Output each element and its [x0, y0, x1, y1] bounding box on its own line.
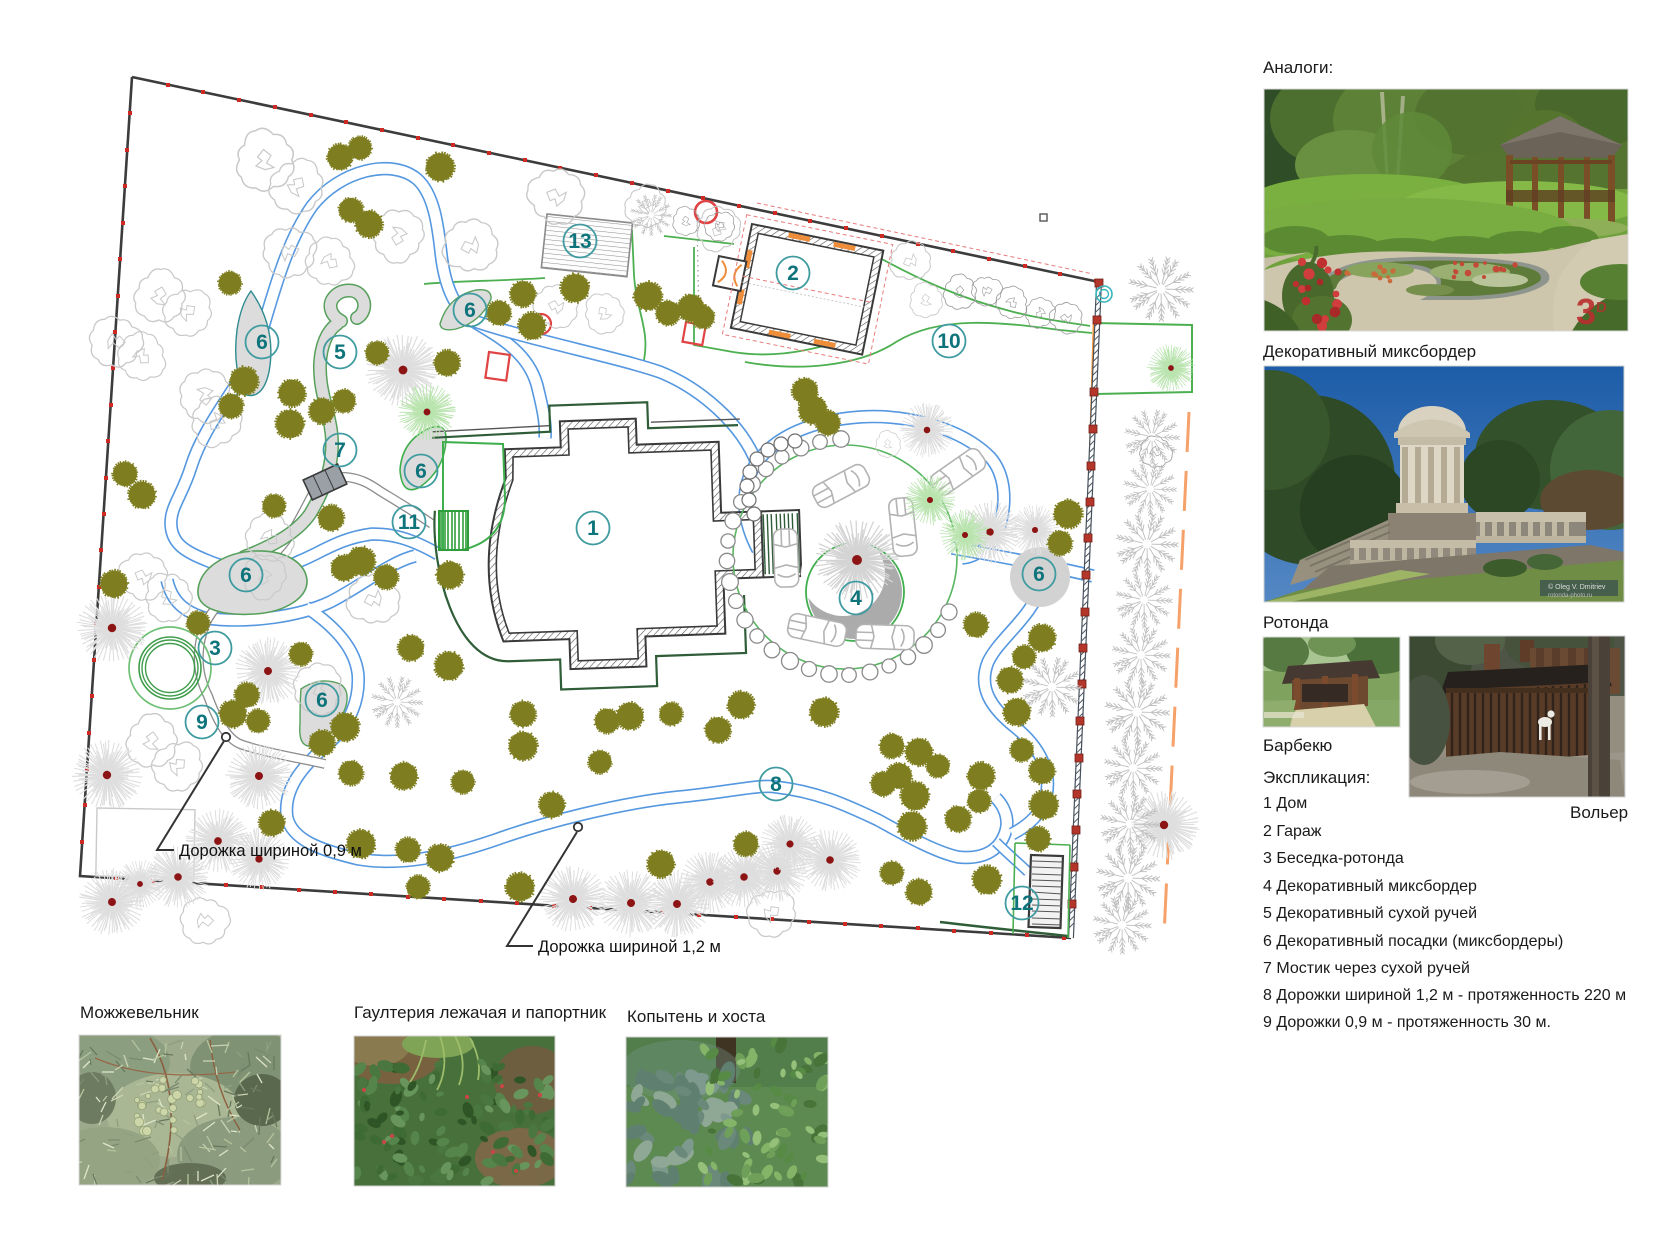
svg-text:3: 3 — [209, 637, 221, 660]
svg-text:13: 13 — [568, 230, 591, 253]
svg-text:8: 8 — [770, 773, 782, 796]
svg-text:Гаултерия лежачая и папортник: Гаултерия лежачая и папортник — [354, 1003, 607, 1022]
svg-text:6: 6 — [256, 331, 268, 354]
svg-text:6: 6 — [316, 689, 328, 712]
svg-text:Вольер: Вольер — [1570, 803, 1628, 822]
svg-text:rotonda-photo.ru: rotonda-photo.ru — [1548, 593, 1592, 599]
svg-text:9 Дорожки 0,9 м - протяженност: 9 Дорожки 0,9 м - протяженность 30 м. — [1263, 1014, 1551, 1031]
svg-text:2: 2 — [787, 262, 799, 285]
svg-text:12: 12 — [1010, 892, 1033, 915]
svg-text:Ротонда: Ротонда — [1263, 613, 1329, 632]
svg-text:7 Мостик через сухой ручей: 7 Мостик через сухой ручей — [1263, 960, 1470, 977]
svg-text:D: D — [1596, 299, 1607, 316]
svg-text:© Oleg V. Dmitriev: © Oleg V. Dmitriev — [1548, 583, 1606, 591]
svg-text:4 Декоративный миксбордер: 4 Декоративный миксбордер — [1263, 878, 1477, 895]
svg-text:Экспликация:: Экспликация: — [1263, 768, 1370, 787]
svg-text:Декоративный миксбордер: Декоративный миксбордер — [1263, 342, 1476, 361]
svg-text:5 Декоративный сухой ручей: 5 Декоративный сухой ручей — [1263, 905, 1477, 922]
svg-text:7: 7 — [334, 439, 346, 462]
svg-text:5: 5 — [334, 341, 346, 364]
svg-text:Аналоги:: Аналоги: — [1263, 58, 1333, 77]
svg-text:2 Гараж: 2 Гараж — [1263, 823, 1322, 840]
svg-text:Дорожка шириной 0,9 м: Дорожка шириной 0,9 м — [179, 842, 362, 860]
svg-text:4: 4 — [850, 587, 862, 610]
svg-text:1: 1 — [587, 517, 599, 540]
svg-text:3: 3 — [1576, 291, 1596, 332]
svg-text:Можжевельник: Можжевельник — [80, 1003, 199, 1022]
svg-text:8 Дорожки шириной 1,2 м - прот: 8 Дорожки шириной 1,2 м - протяженность … — [1263, 987, 1626, 1004]
svg-text:Копытень и хоста: Копытень и хоста — [627, 1007, 766, 1026]
svg-text:Барбекю: Барбекю — [1263, 736, 1333, 755]
svg-text:3 Беседка-ротонда: 3 Беседка-ротонда — [1263, 850, 1404, 867]
svg-text:6 Декоративный посадки (миксбо: 6 Декоративный посадки (миксбордеры) — [1263, 933, 1563, 950]
svg-text:6: 6 — [464, 299, 476, 322]
svg-text:11: 11 — [398, 511, 421, 534]
svg-text:1 Дом: 1 Дом — [1263, 795, 1307, 812]
svg-text:6: 6 — [240, 564, 252, 587]
svg-text:6: 6 — [1033, 563, 1045, 586]
svg-text:10: 10 — [937, 330, 960, 353]
svg-text:9: 9 — [196, 711, 208, 734]
svg-text:6: 6 — [415, 460, 427, 483]
svg-text:Дорожка шириной 1,2 м: Дорожка шириной 1,2 м — [538, 938, 721, 956]
